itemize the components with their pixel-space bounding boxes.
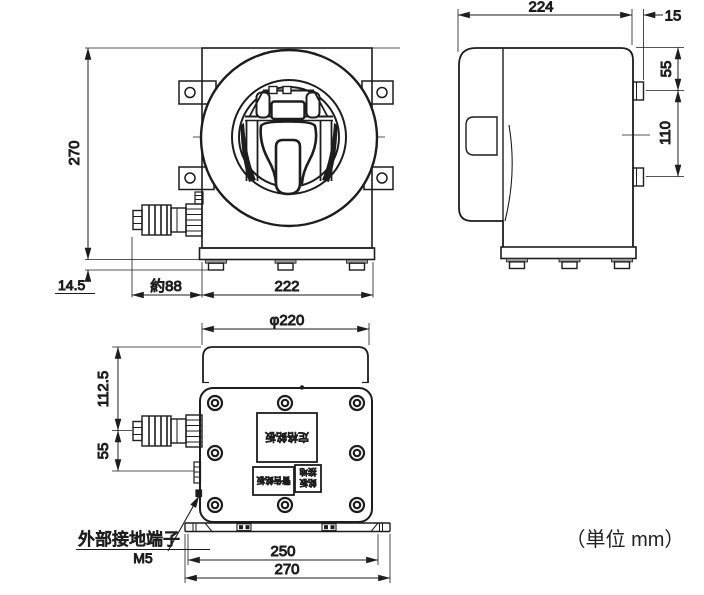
front-view: 270 14.5 約88 222 <box>55 48 400 298</box>
dim-side-tab-pitch: 110 <box>657 121 674 145</box>
side-body <box>459 48 650 269</box>
dim-bottom-connector-offset: 112.5 <box>95 371 112 407</box>
side-dimensions: 224 15 55 110 <box>458 0 684 177</box>
front-cable-connector <box>133 192 203 236</box>
dim-front-height: 270 <box>66 140 83 165</box>
dim-side-tab-offset: 55 <box>658 61 675 78</box>
nameplate-small-label-line1: 接地 <box>299 467 317 477</box>
dim-bottom-diameter: φ220 <box>270 312 305 329</box>
technical-drawing-page: 270 14.5 約88 222 <box>0 0 704 595</box>
bottom-view: 定格銘板 警告銘板 接地 銘板 <box>76 312 390 583</box>
bottom-cable-connector <box>133 415 202 447</box>
nameplate-small-label-line2: 銘板 <box>299 478 317 488</box>
ground-terminal <box>194 462 202 497</box>
side-view: 224 15 55 110 <box>458 0 684 269</box>
front-feet <box>206 260 368 270</box>
dim-front-foot-height: 14.5 <box>58 277 85 293</box>
dim-front-connector: 約88 <box>150 278 182 295</box>
dim-side-tab: 15 <box>665 8 682 25</box>
dimension-drawing: 270 14.5 約88 222 <box>0 0 704 595</box>
bottom-bezel <box>203 347 368 383</box>
dim-bottom-base-width: 270 <box>274 561 299 578</box>
dim-bottom-ground-offset: 55 <box>95 443 112 460</box>
ground-terminal-label: 外部接地端子 <box>78 530 180 549</box>
bottom-mounting-bracket <box>185 523 390 532</box>
nameplate-warning-label: 警告銘板 <box>256 476 291 486</box>
dim-front-width: 222 <box>274 278 299 295</box>
dim-bottom-hole-pitch: 250 <box>270 543 295 560</box>
bottom-cover-plate: 定格銘板 警告銘板 接地 銘板 <box>200 385 372 522</box>
nameplate-main-label: 定格銘板 <box>265 431 309 445</box>
dim-side-depth: 224 <box>528 0 553 16</box>
unit-note: （単位 mm） <box>566 528 685 551</box>
ground-terminal-size: M5 <box>133 550 153 566</box>
